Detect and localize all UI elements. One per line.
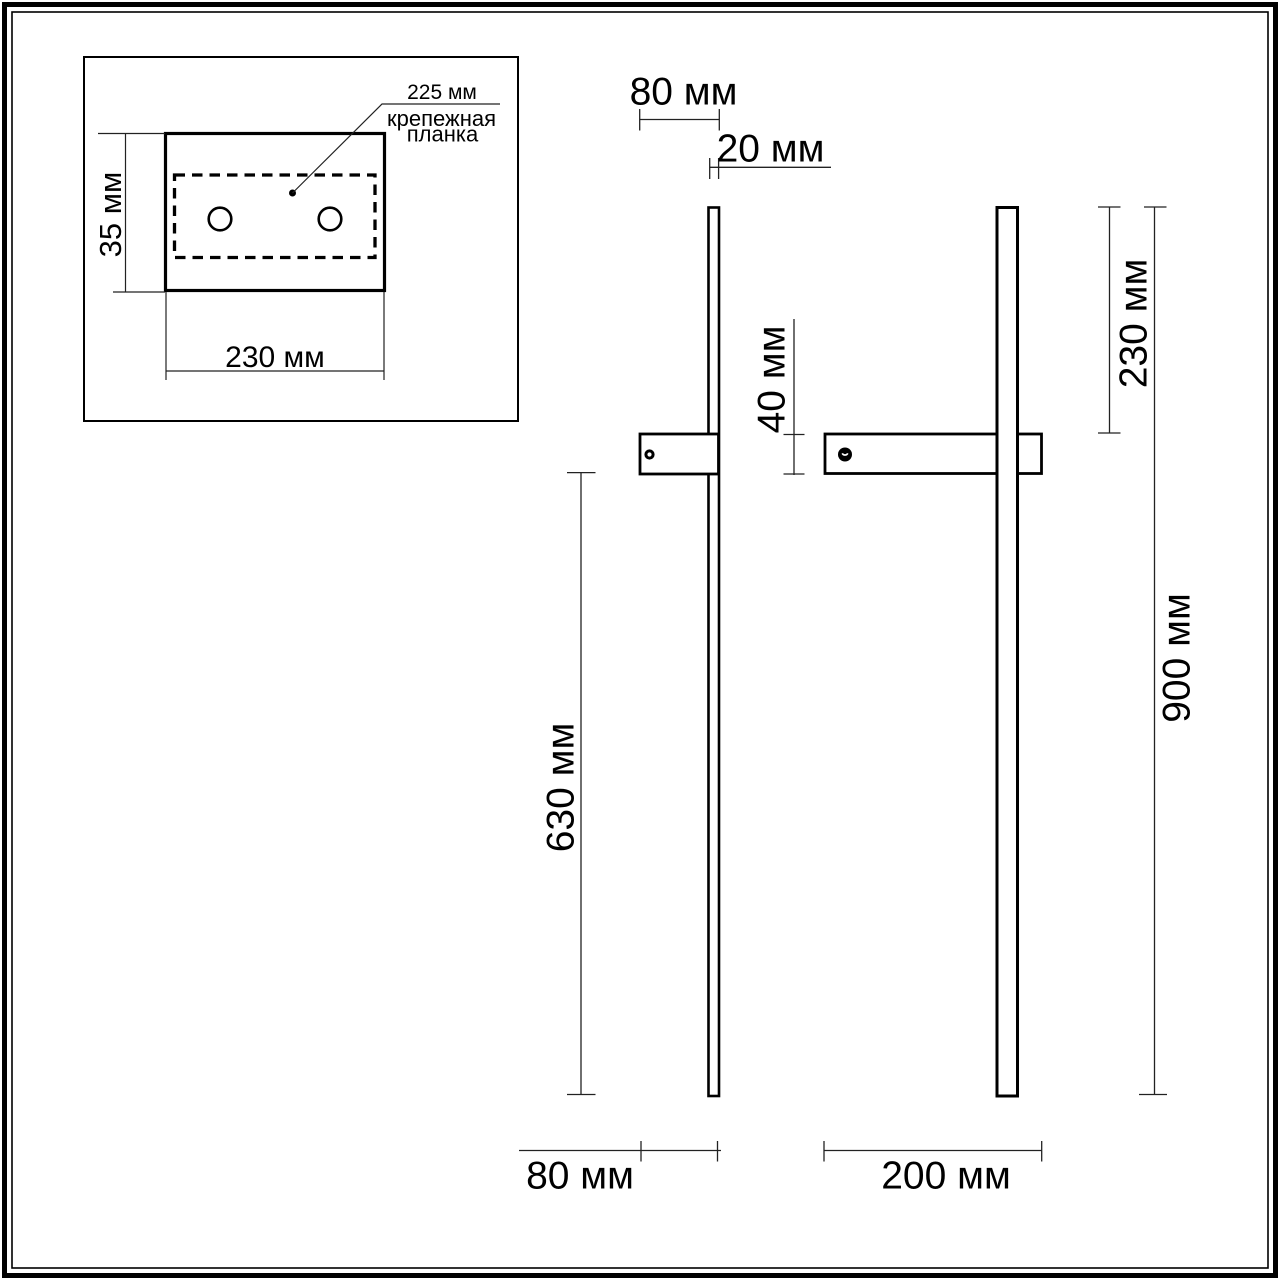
svg-text:230 мм: 230 мм xyxy=(1113,259,1156,389)
svg-text:225 мм: 225 мм xyxy=(407,81,477,104)
svg-text:планка: планка xyxy=(407,122,479,147)
svg-text:230 мм: 230 мм xyxy=(225,341,325,374)
svg-text:35 мм: 35 мм xyxy=(93,172,128,258)
svg-text:200 мм: 200 мм xyxy=(881,1154,1011,1197)
svg-text:40 мм: 40 мм xyxy=(751,326,794,434)
svg-text:900 мм: 900 мм xyxy=(1156,593,1199,723)
svg-text:20 мм: 20 мм xyxy=(717,127,825,170)
svg-text:80 мм: 80 мм xyxy=(526,1154,634,1197)
svg-text:80 мм: 80 мм xyxy=(630,71,738,114)
svg-text:630 мм: 630 мм xyxy=(540,723,583,853)
